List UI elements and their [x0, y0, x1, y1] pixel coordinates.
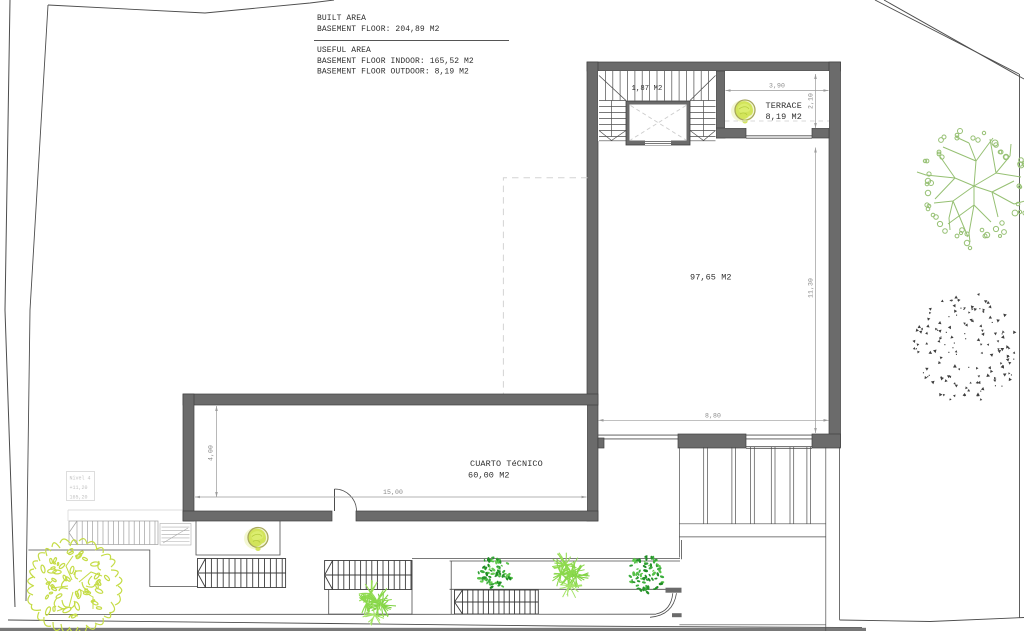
- svg-text:60,00 M2: 60,00 M2: [468, 471, 510, 481]
- svg-text:TERRACE: TERRACE: [766, 101, 802, 111]
- svg-text:97,65 M2: 97,65 M2: [690, 273, 732, 283]
- svg-text:CUARTO TéCNICO: CUARTO TéCNICO: [470, 459, 543, 469]
- svg-text:BASEMENT FLOOR INDOOR: 165,52: BASEMENT FLOOR INDOOR: 165,52 M2: [317, 57, 474, 66]
- svg-text:1,87 M2: 1,87 M2: [632, 85, 663, 93]
- svg-text:3,90: 3,90: [769, 83, 785, 90]
- svg-text:+11,20: +11,20: [70, 485, 88, 491]
- svg-text:11,30: 11,30: [808, 278, 815, 298]
- svg-text:2,10: 2,10: [808, 93, 815, 109]
- svg-text:165,20: 165,20: [70, 495, 88, 501]
- svg-text:BASEMENT FLOOR OUTDOOR: 8,19 M: BASEMENT FLOOR OUTDOOR: 8,19 M2: [317, 68, 469, 77]
- svg-text:8,80: 8,80: [705, 413, 721, 420]
- svg-text:Nivel 4: Nivel 4: [70, 476, 91, 482]
- svg-text:BUILT AREA: BUILT AREA: [317, 14, 366, 23]
- svg-text:8,19 M2: 8,19 M2: [766, 112, 802, 122]
- svg-text:4,00: 4,00: [208, 445, 215, 461]
- svg-text:BASEMENT FLOOR: 204,89 M2: BASEMENT FLOOR: 204,89 M2: [317, 25, 440, 34]
- svg-text:15,00: 15,00: [383, 489, 403, 496]
- svg-text:USEFUL AREA: USEFUL AREA: [317, 46, 371, 55]
